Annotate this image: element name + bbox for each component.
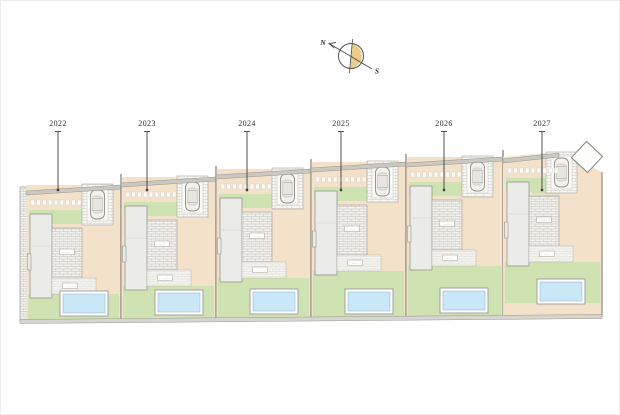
driveway-dash bbox=[233, 184, 237, 189]
plot-6: ·········· bbox=[503, 141, 603, 317]
area-label-text: ····· bbox=[67, 284, 72, 288]
driveway-dash bbox=[452, 172, 456, 177]
plot-2: ·········· bbox=[121, 166, 216, 320]
driveway-dash bbox=[531, 168, 535, 173]
plot-1: ·········· bbox=[26, 174, 121, 321]
car-icon bbox=[91, 190, 105, 219]
swimming-pool bbox=[443, 291, 485, 310]
driveway-dash bbox=[221, 184, 225, 189]
plot-5: ·········· bbox=[406, 150, 503, 318]
driveway-dash bbox=[161, 192, 165, 197]
driveway-dash bbox=[440, 172, 444, 177]
leader-dot bbox=[340, 189, 342, 191]
driveway-dash bbox=[428, 172, 432, 177]
driveway-dash bbox=[333, 177, 337, 182]
plot-4: ·········· bbox=[311, 154, 406, 319]
plot-year-label: 2027 bbox=[533, 119, 551, 128]
plot-year-label: 2025 bbox=[332, 119, 350, 128]
plot-3: ·········· bbox=[216, 159, 311, 319]
driveway-dash bbox=[316, 177, 320, 182]
house-footprint bbox=[507, 182, 529, 266]
plot-year-label: 2024 bbox=[238, 119, 256, 128]
driveway-dash bbox=[411, 172, 415, 177]
driveway-dash bbox=[43, 200, 47, 205]
driveway-dash bbox=[514, 168, 518, 173]
leader-dot bbox=[443, 189, 445, 191]
area-label-text: ····· bbox=[544, 252, 549, 256]
swimming-pool bbox=[253, 292, 295, 311]
area-label-text: ····· bbox=[447, 256, 452, 260]
driveway-dash bbox=[250, 184, 254, 189]
driveway-dash bbox=[155, 192, 159, 197]
driveway-dash bbox=[132, 192, 136, 197]
compass-north-label: N bbox=[319, 38, 326, 47]
driveway-dash bbox=[138, 192, 142, 197]
leader-dot bbox=[146, 189, 148, 191]
house-footprint bbox=[410, 186, 432, 270]
driveway-dash bbox=[345, 177, 349, 182]
swimming-pool bbox=[348, 292, 390, 311]
driveway-dash bbox=[417, 172, 421, 177]
car-icon bbox=[186, 182, 200, 211]
driveway-dash bbox=[77, 200, 81, 205]
compass-rose: N S bbox=[319, 38, 379, 76]
driveway-dash bbox=[48, 200, 52, 205]
driveway-dash bbox=[72, 200, 76, 205]
driveway-dash bbox=[357, 177, 361, 182]
driveway-dash bbox=[66, 200, 70, 205]
house-notch bbox=[313, 231, 317, 247]
plot-year-label: 2022 bbox=[49, 119, 67, 128]
driveway-dash bbox=[554, 168, 558, 173]
house-notch bbox=[218, 238, 222, 254]
driveway-dash bbox=[322, 177, 326, 182]
area-label-text: ····· bbox=[64, 250, 69, 254]
swimming-pool bbox=[540, 282, 582, 301]
driveway-dash bbox=[457, 172, 461, 177]
driveway-dash bbox=[149, 192, 153, 197]
driveway-dash bbox=[31, 200, 35, 205]
driveway-dash bbox=[434, 172, 438, 177]
site-plan-drawing: N S ····································… bbox=[1, 1, 619, 414]
driveway-dash bbox=[227, 184, 231, 189]
driveway-dash bbox=[262, 184, 266, 189]
area-label-text: ····· bbox=[162, 276, 167, 280]
plot-year-label: 2023 bbox=[138, 119, 156, 128]
car-icon bbox=[471, 162, 485, 191]
swimming-pool bbox=[63, 294, 105, 313]
driveway-dash bbox=[256, 184, 260, 189]
leader-dot bbox=[246, 189, 248, 191]
driveway-dash bbox=[362, 177, 366, 182]
driveway-dash bbox=[54, 200, 58, 205]
house-footprint bbox=[220, 198, 242, 282]
driveway-dash bbox=[167, 192, 171, 197]
driveway-dash bbox=[328, 177, 332, 182]
plot-year-label: 2026 bbox=[435, 119, 453, 128]
house-notch bbox=[408, 226, 412, 242]
area-label-text: ····· bbox=[541, 218, 546, 222]
area-label-text: ····· bbox=[254, 234, 259, 238]
house-notch bbox=[505, 222, 509, 238]
house-notch bbox=[28, 254, 32, 270]
area-label-text: ····· bbox=[444, 222, 449, 226]
driveway-dash bbox=[267, 184, 271, 189]
driveway-dash bbox=[351, 177, 355, 182]
leader-dot bbox=[57, 189, 59, 191]
driveway-dash bbox=[446, 172, 450, 177]
area-label-text: ····· bbox=[159, 242, 164, 246]
driveway-dash bbox=[520, 168, 524, 173]
driveway-dash bbox=[60, 200, 64, 205]
swimming-pool bbox=[158, 293, 200, 312]
house-footprint bbox=[125, 206, 147, 290]
house-footprint bbox=[30, 214, 52, 298]
driveway-dash bbox=[423, 172, 427, 177]
driveway-dash bbox=[143, 192, 147, 197]
driveway-dash bbox=[238, 184, 242, 189]
area-label-text: ····· bbox=[349, 227, 354, 231]
leader-dot bbox=[541, 189, 543, 191]
car-icon bbox=[376, 167, 390, 196]
area-label-text: ····· bbox=[257, 268, 262, 272]
driveway-dash bbox=[525, 168, 529, 173]
house-footprint bbox=[315, 191, 337, 275]
driveway-dash bbox=[126, 192, 130, 197]
compass-south-label: S bbox=[375, 67, 379, 76]
car-icon bbox=[281, 174, 295, 203]
plot-callout: 2022 bbox=[49, 119, 67, 191]
driveway-dash bbox=[172, 192, 176, 197]
area-label-text: ····· bbox=[352, 261, 357, 265]
driveway-dash bbox=[508, 168, 512, 173]
driveway-dash bbox=[537, 168, 541, 173]
site-plan-page: N S ····································… bbox=[0, 0, 620, 415]
driveway-dash bbox=[549, 168, 553, 173]
driveway-dash bbox=[37, 200, 41, 205]
driveway-dash bbox=[543, 168, 547, 173]
house-notch bbox=[123, 246, 127, 262]
